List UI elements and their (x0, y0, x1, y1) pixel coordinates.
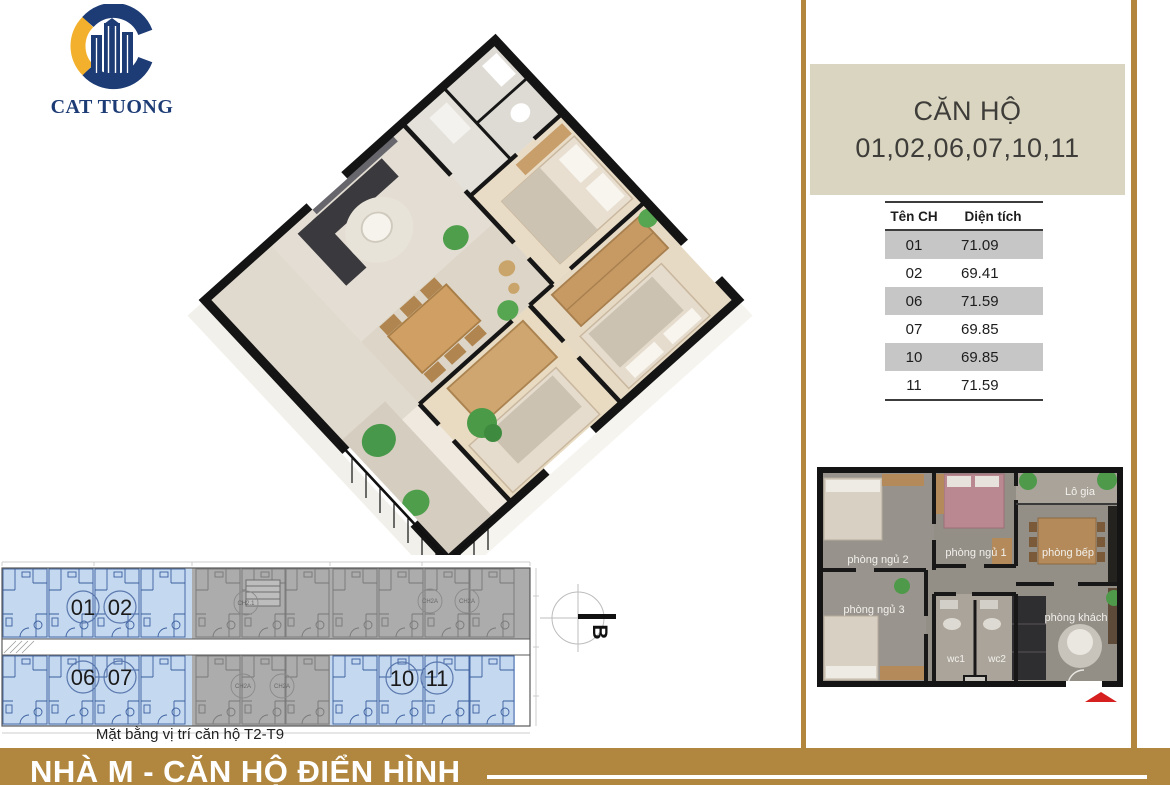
north-compass: B (540, 584, 616, 652)
compass-north-label: B (588, 624, 611, 639)
gold-divider-right (1131, 0, 1137, 748)
room-label-wc2: wc2 (987, 654, 1006, 665)
table-row: 07 69.85 (885, 315, 1043, 343)
table-row: 06 71.59 (885, 287, 1043, 315)
room-label-loggia: Lô gia (1065, 486, 1096, 498)
table-row: 11 71.59 (885, 371, 1043, 401)
unit-area: 69.41 (943, 265, 1043, 282)
room-label-bedroom2: phòng ngủ 2 (847, 554, 908, 566)
room-label-bedroom3: phòng ngủ 3 (843, 604, 904, 616)
company-name: CAT TUONG (50, 96, 174, 119)
unit-id: 01 (885, 237, 943, 254)
unit-number-01: 01 (71, 595, 95, 620)
entrance-arrow-icon (1085, 692, 1117, 702)
gray-unit-label: CH2A (235, 684, 251, 690)
unit-id: 11 (885, 377, 943, 394)
floor-location-plan: 01 02 06 07 10 11 CH2.1 CH2A CH2A CH2A C… (0, 556, 660, 742)
col-header-area: Diện tích (943, 209, 1043, 224)
buildings-glyph (91, 18, 133, 75)
gray-unit-label: CH2A (459, 599, 475, 605)
compass-bar (578, 614, 616, 619)
unit-number-07: 07 (108, 665, 132, 690)
company-logo-icon (50, 4, 174, 96)
unit-id: 10 (885, 349, 943, 366)
gray-unit-label: CH2A (422, 599, 438, 605)
table-row: 02 69.41 (885, 259, 1043, 287)
footer-title: NHÀ M - CĂN HỘ ĐIỂN HÌNH (30, 754, 461, 785)
room-label-bedroom1: phòng ngủ 1 (945, 547, 1006, 559)
unit-area: 71.59 (943, 293, 1043, 310)
room-label-living: phòng khách (1045, 612, 1108, 624)
apartment-title-box: CĂN HỘ 01,02,06,07,10,11 (810, 64, 1125, 195)
slide-page: CAT TUONG (0, 0, 1170, 785)
apartment-title-line1: CĂN HỘ (913, 93, 1021, 130)
unit-floor-plan: phòng ngủ 2 phòng ngủ 1 phòng bếp Lô gia… (816, 466, 1128, 704)
apartment-title-line2: 01,02,06,07,10,11 (855, 130, 1079, 167)
col-header-unit: Tên CH (885, 209, 943, 224)
gray-unit-label: CH2A (274, 684, 290, 690)
unit-id: 06 (885, 293, 943, 310)
gray-unit-label: CH2.1 (237, 601, 255, 607)
unit-id: 02 (885, 265, 943, 282)
footer-banner: NHÀ M - CĂN HỘ ĐIỂN HÌNH (0, 748, 1170, 785)
gold-divider-left (801, 0, 806, 748)
footer-rule (487, 775, 1147, 779)
unit-area: 71.09 (943, 237, 1043, 254)
unit-number-06: 06 (71, 665, 95, 690)
table-row: 10 69.85 (885, 343, 1043, 371)
site-plan-caption: Mặt bằng vị trí căn hộ T2-T9 (80, 726, 300, 743)
area-table: Tên CH Diện tích 01 71.09 02 69.41 06 71… (885, 201, 1043, 401)
unit-area: 69.85 (943, 349, 1043, 366)
table-row: 01 71.09 (885, 231, 1043, 259)
unit-number-10: 10 (390, 666, 414, 691)
unit-area: 71.59 (943, 377, 1043, 394)
company-logo: CAT TUONG (50, 4, 174, 119)
isometric-apartment-render (160, 15, 760, 555)
room-label-kitchen: phòng bếp (1042, 547, 1094, 559)
area-table-header: Tên CH Diện tích (885, 203, 1043, 231)
room-label-wc1: wc1 (946, 654, 965, 665)
unit-number-02: 02 (108, 595, 132, 620)
unit-number-11: 11 (426, 666, 449, 691)
unit-area: 69.85 (943, 321, 1043, 338)
unit-id: 07 (885, 321, 943, 338)
